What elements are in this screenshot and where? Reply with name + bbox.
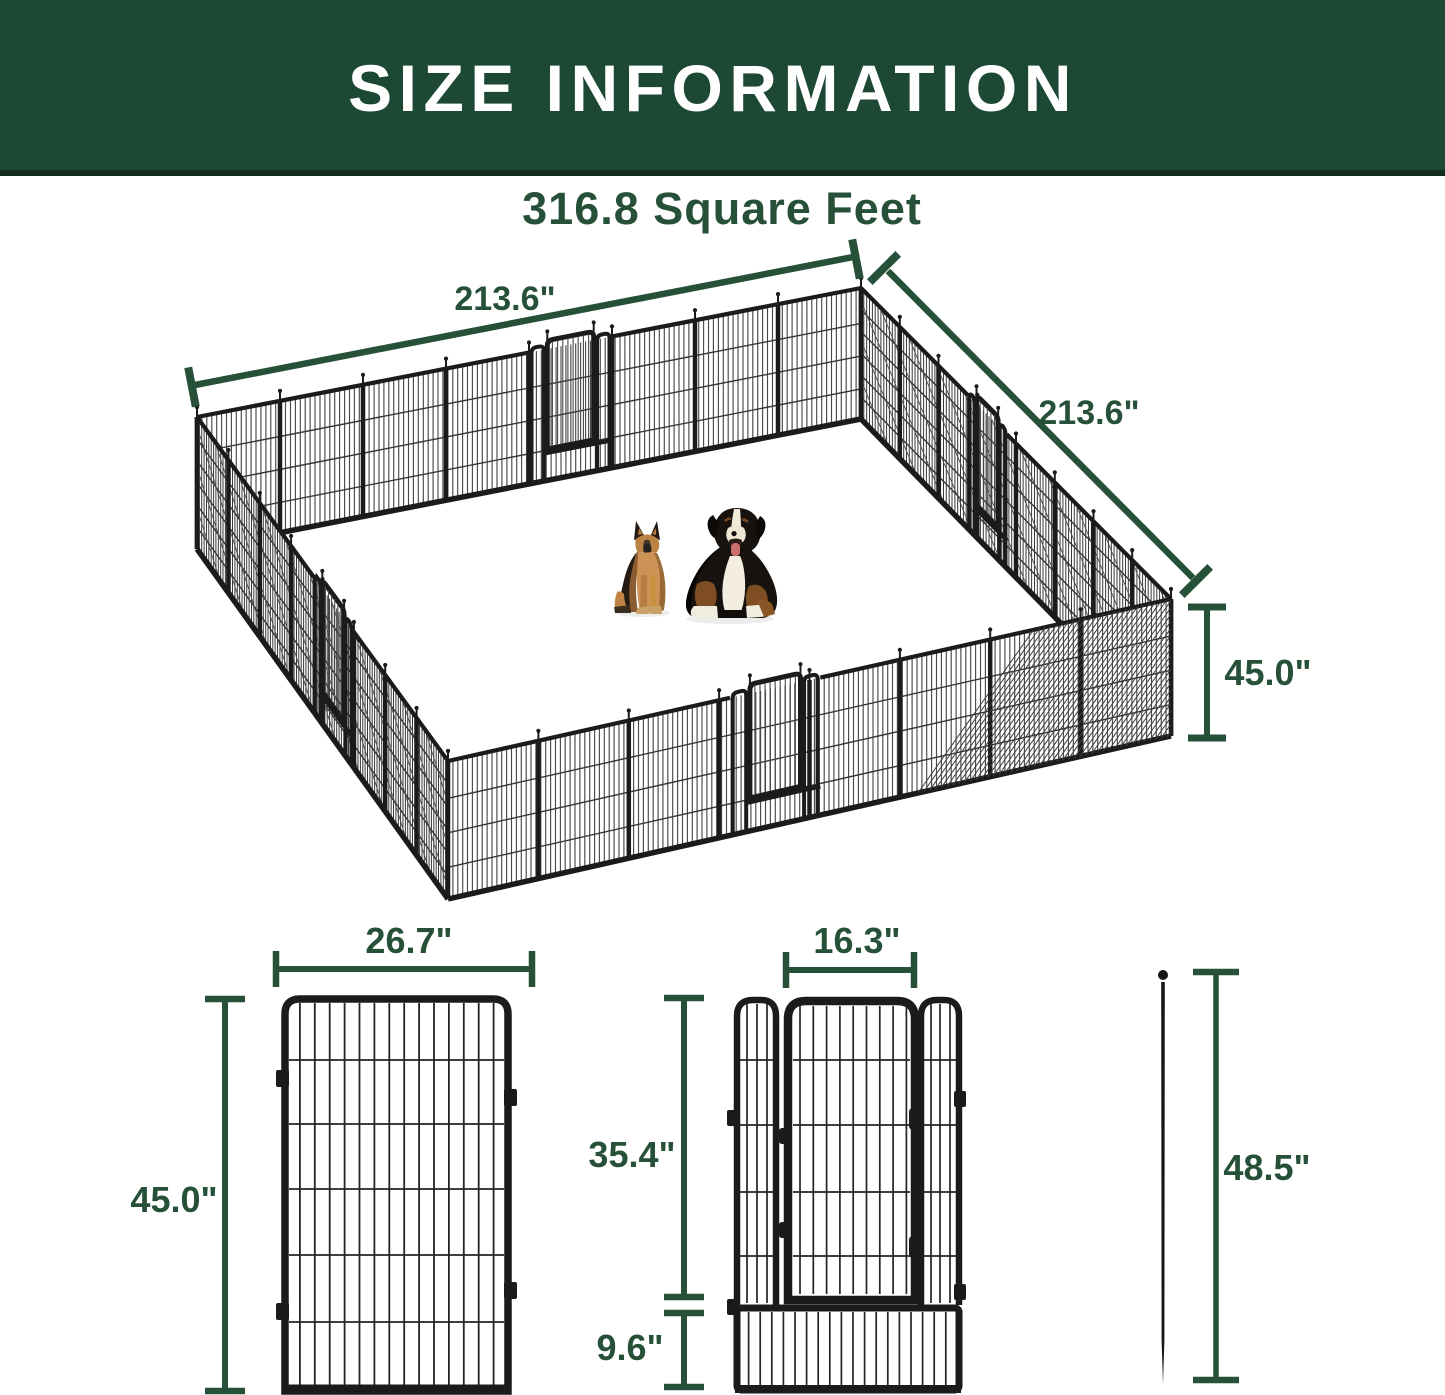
svg-text:45.0": 45.0" (1224, 652, 1311, 693)
svg-text:SIZE INFORMATION: SIZE INFORMATION (348, 51, 1078, 125)
svg-text:48.5": 48.5" (1223, 1147, 1310, 1188)
svg-text:213.6": 213.6" (454, 280, 555, 318)
svg-text:316.8 Square Feet: 316.8 Square Feet (522, 183, 922, 234)
svg-text:9.6": 9.6" (596, 1327, 663, 1368)
svg-text:26.7": 26.7" (365, 920, 452, 961)
svg-text:16.3": 16.3" (813, 920, 900, 961)
svg-text:35.4": 35.4" (588, 1134, 675, 1175)
svg-text:45.0": 45.0" (130, 1179, 217, 1220)
svg-text:213.6": 213.6" (1038, 394, 1139, 432)
